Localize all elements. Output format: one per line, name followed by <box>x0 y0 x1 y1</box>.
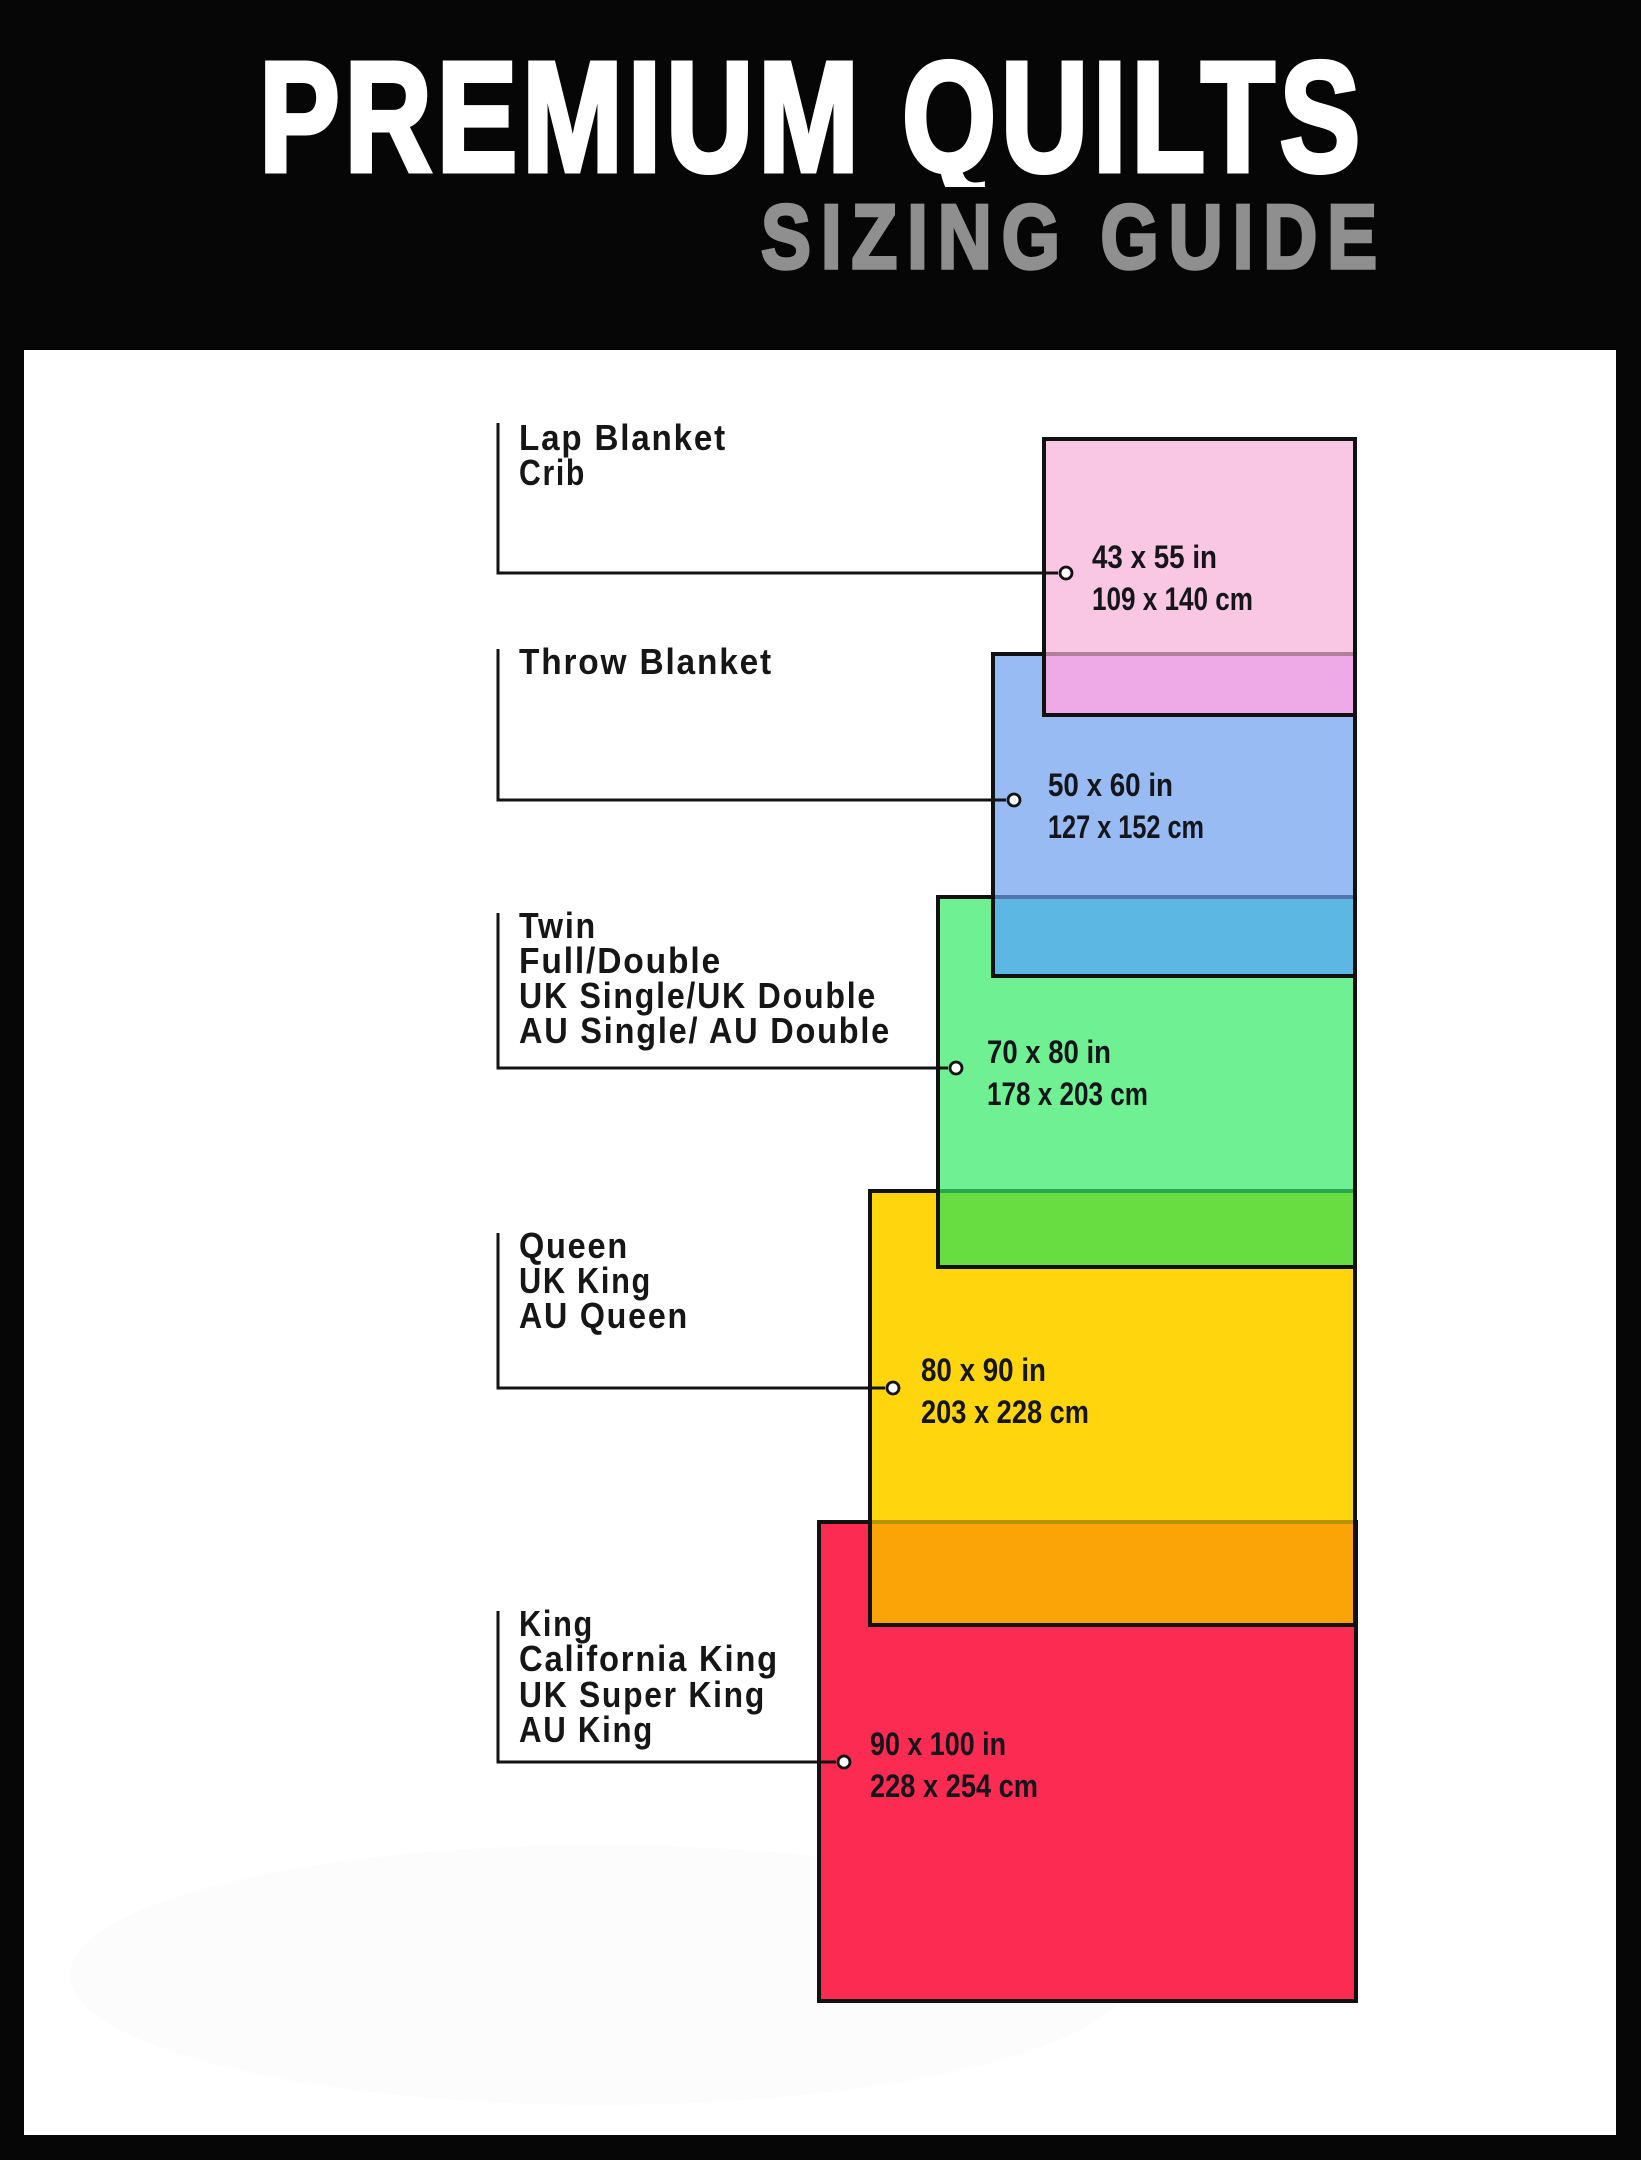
svg-text:AU Queen: AU Queen <box>519 1295 689 1336</box>
svg-text:California King: California King <box>519 1638 779 1679</box>
svg-text:50 x 60 in: 50 x 60 in <box>1048 767 1173 803</box>
svg-text:203 x 228 cm: 203 x 228 cm <box>921 1394 1089 1430</box>
svg-text:AU Single/ AU Double: AU Single/ AU Double <box>519 1010 891 1051</box>
svg-text:127 x 152 cm: 127 x 152 cm <box>1048 809 1204 845</box>
svg-text:AU King: AU King <box>519 1709 654 1750</box>
svg-text:70 x 80 in: 70 x 80 in <box>987 1034 1111 1070</box>
svg-text:228 x 254 cm: 228 x 254 cm <box>870 1768 1038 1804</box>
svg-text:Throw Blanket: Throw Blanket <box>519 641 773 682</box>
svg-text:178 x 203 cm: 178 x 203 cm <box>987 1076 1148 1112</box>
svg-text:PREMIUM QUILTS: PREMIUM QUILTS <box>259 30 1365 205</box>
svg-text:80 x 90 in: 80 x 90 in <box>921 1352 1046 1388</box>
svg-text:SIZING GUIDE: SIZING GUIDE <box>761 187 1387 288</box>
svg-text:43 x 55 in: 43 x 55 in <box>1092 539 1217 575</box>
svg-text:90 x 100 in: 90 x 100 in <box>870 1726 1006 1762</box>
svg-text:109 x 140 cm: 109 x 140 cm <box>1092 581 1253 617</box>
svg-text:Crib: Crib <box>519 452 586 493</box>
